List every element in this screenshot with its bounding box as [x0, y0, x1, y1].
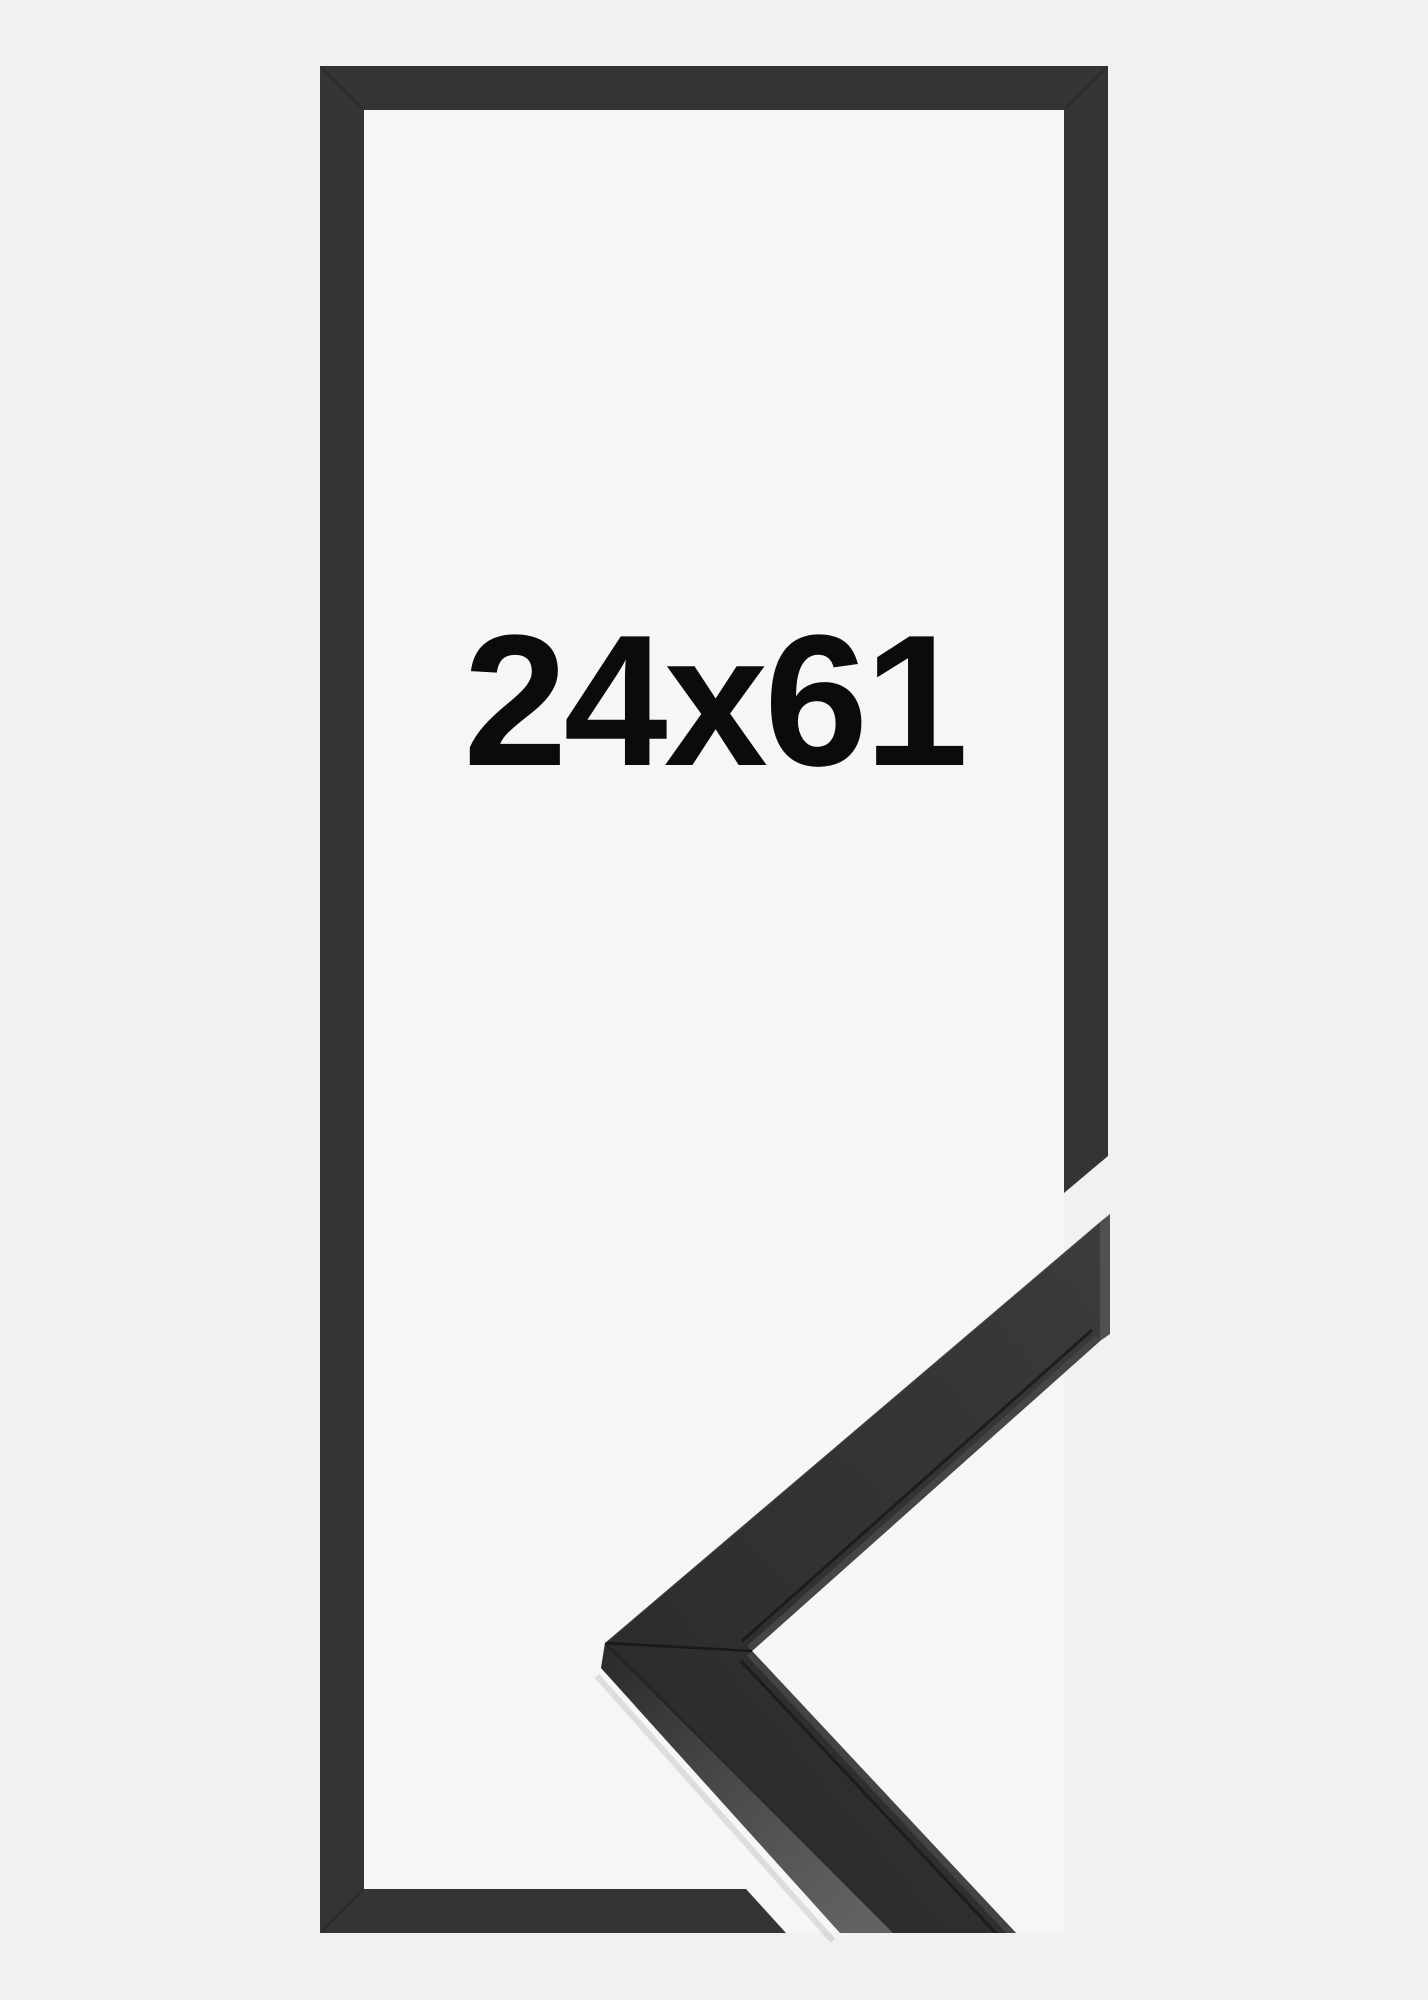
- frame-right-bar: [1064, 66, 1108, 1193]
- frame-illustration: [0, 0, 1428, 2000]
- size-label: 24x61: [364, 607, 1064, 794]
- product-image: 24x61: [0, 0, 1428, 2000]
- frame-left-bar: [320, 66, 364, 1933]
- frame-bottom-bar: [320, 1889, 786, 1933]
- frame-top-bar: [320, 66, 1108, 110]
